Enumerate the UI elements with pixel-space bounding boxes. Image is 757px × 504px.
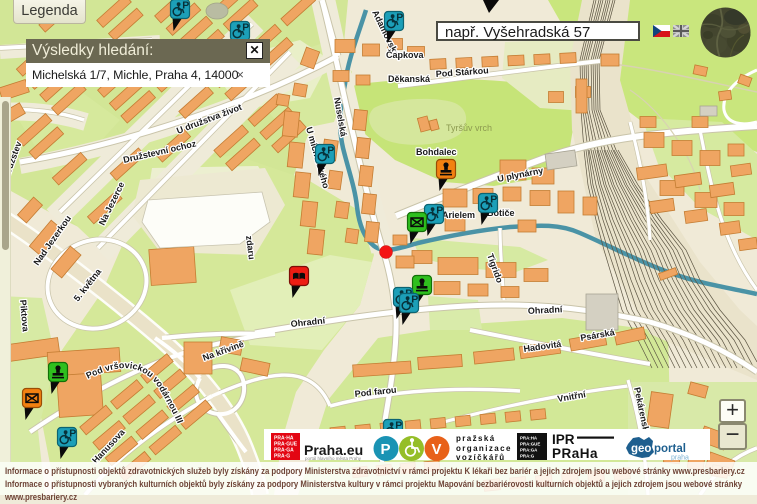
svg-text:PRA:G: PRA:G xyxy=(520,454,535,459)
svg-text:PRA:GUE: PRA:GUE xyxy=(520,442,540,447)
svg-text:P: P xyxy=(381,441,391,458)
svg-text:portal: portal xyxy=(654,443,686,455)
svg-text:praha: praha xyxy=(671,455,689,462)
svg-text:IPR: IPR xyxy=(552,433,575,447)
svg-text:V: V xyxy=(432,441,442,458)
svg-text:geo: geo xyxy=(631,443,651,455)
svg-text:PRA·G: PRA·G xyxy=(274,454,290,460)
svg-text:PRaHa: PRaHa xyxy=(552,446,598,460)
svg-text:PRA:HA: PRA:HA xyxy=(520,436,538,441)
svg-text:PRA:GA: PRA:GA xyxy=(520,448,538,453)
